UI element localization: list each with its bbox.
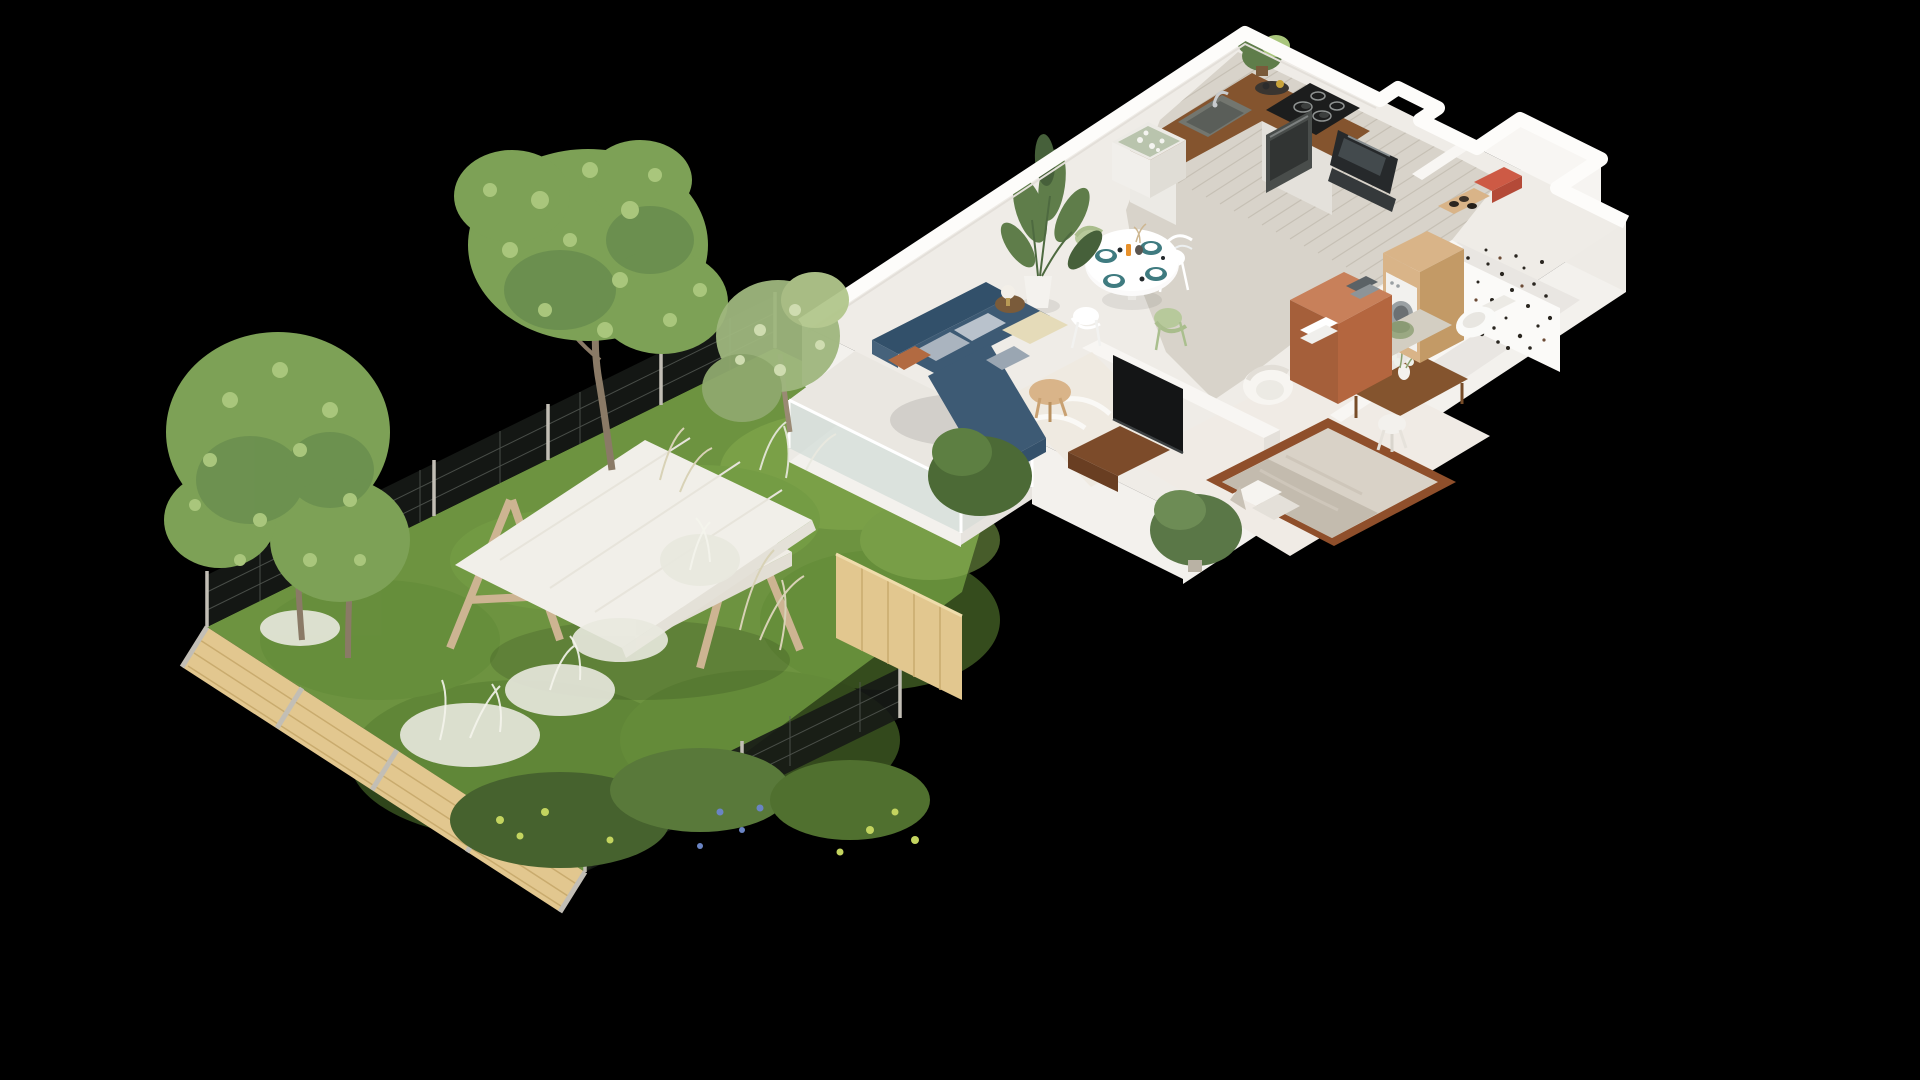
coffee-table <box>1029 379 1071 422</box>
floorplan-render-canvas <box>0 0 1920 1080</box>
juice-bottle <box>1126 244 1131 256</box>
table-vase <box>1135 245 1143 255</box>
isometric-scene <box>0 0 1920 1080</box>
white-armchair <box>1243 367 1293 405</box>
